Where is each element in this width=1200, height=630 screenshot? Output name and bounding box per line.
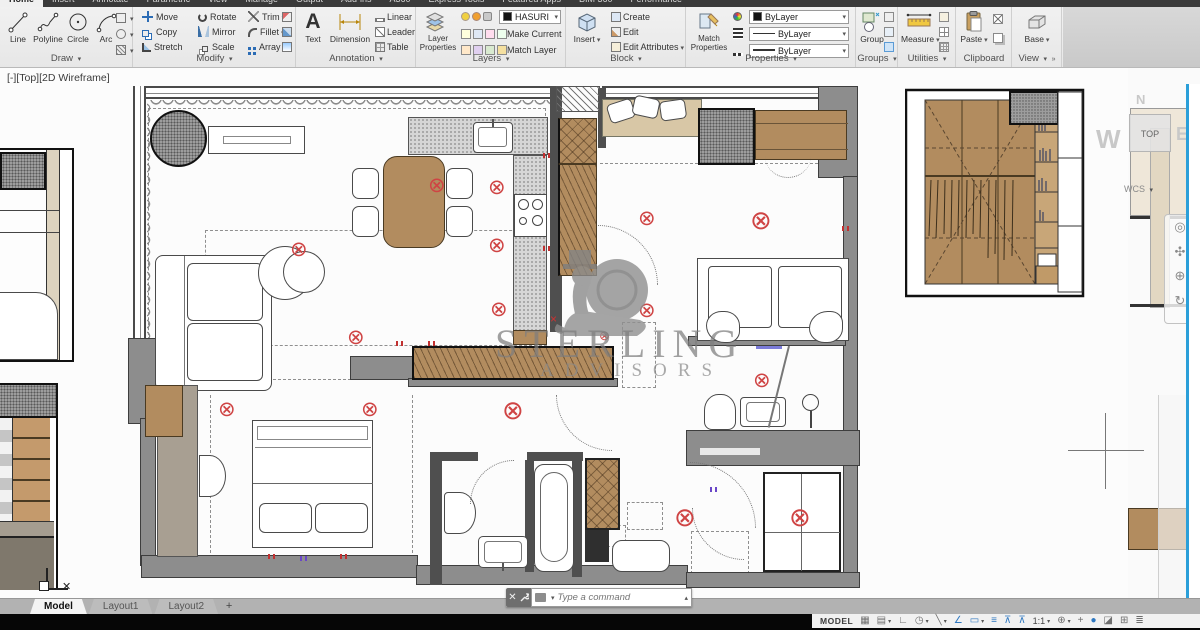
viewcube-top-face[interactable]: TOP <box>1129 114 1171 152</box>
measure-label: Measure <box>901 34 934 44</box>
dimension-icon <box>337 10 363 34</box>
viewcube-north-label[interactable]: N <box>1136 92 1145 107</box>
hatch-block <box>0 385 56 418</box>
layout2-tab[interactable]: Layout2 <box>154 599 218 614</box>
ceiling-light-symbol: ⊗ <box>361 399 379 420</box>
group-edit-icon[interactable] <box>884 25 896 39</box>
polyline-button[interactable]: Polyline <box>32 10 64 44</box>
bathroom-cabinet <box>585 458 620 530</box>
measure-icon <box>906 10 932 34</box>
window-edge-gap <box>1189 84 1200 598</box>
polar-tracking-icon[interactable]: ◷ <box>915 616 924 626</box>
bathroom-sink <box>740 397 786 427</box>
tab-manage[interactable]: Manage <box>236 0 287 7</box>
wall-segment <box>430 452 478 461</box>
drawing-viewport[interactable]: [-][Top][2D Wireframe] ‒□✕ ✕ <box>0 68 1200 598</box>
snap-icon[interactable]: ▤ <box>877 616 886 626</box>
layer-state-icons[interactable] <box>461 10 494 24</box>
shower-head <box>802 394 819 411</box>
watermark-text: ADVISORS <box>540 360 723 382</box>
status-bar: MODEL ▦ ▤▾ ∟ ◷▾ ╲▾ ∠ ▭▾ ≡ ⊼ ⊼ 1:1▾ ⊕▾ + … <box>0 614 1200 630</box>
ceiling-light-symbol: ⊗ <box>290 239 308 260</box>
line-button[interactable]: Line <box>2 10 34 44</box>
block-create-button[interactable]: Create <box>611 10 650 24</box>
sink-basin <box>478 127 507 147</box>
annotation-scale-value[interactable]: 1:1 <box>1033 616 1046 626</box>
draw-panel-footer[interactable]: Draw ▾ <box>0 53 132 66</box>
color-wheel-icon <box>733 10 744 24</box>
left-elevation-top <box>0 148 74 362</box>
utilities-panel: Measure▾ Utilities ▾ <box>899 7 956 67</box>
drawer-stack <box>13 418 50 521</box>
clipboard-panel: Paste▾ Clipboard <box>957 7 1012 67</box>
wall-niche <box>700 448 760 455</box>
annotation-visibility-icon[interactable]: ⊼ <box>1004 616 1011 626</box>
ceiling-light-symbol: ⊗ <box>502 397 524 423</box>
group-icon <box>861 10 883 34</box>
lineweight-icon <box>733 27 745 41</box>
blanket-line <box>255 447 371 448</box>
wall-segment <box>141 555 418 578</box>
sofa-back-line <box>184 256 185 390</box>
workspace-switching-icon[interactable]: ⊕ <box>1057 616 1065 626</box>
desk-line <box>756 123 848 124</box>
command-recent-arrow[interactable]: ▾ <box>551 594 555 602</box>
command-input[interactable] <box>557 592 681 603</box>
osnap-tracking-icon[interactable]: ∠ <box>954 616 963 626</box>
ribbon-tab-bar: Home Insert Annotate Parametric View Man… <box>0 0 1200 7</box>
ceiling-light-symbol: ⊗ <box>750 207 772 233</box>
ribbon-empty-area <box>1063 7 1200 67</box>
door-swing-arc <box>470 460 514 504</box>
base-button[interactable]: Base▾ <box>1021 10 1053 45</box>
clipboard-panel-footer: Clipboard <box>957 53 1011 66</box>
status-bar-tools: MODEL ▦ ▤▾ ∟ ◷▾ ╲▾ ∠ ▭▾ ≡ ⊼ ⊼ 1:1▾ ⊕▾ + … <box>812 614 1200 628</box>
ceiling-light-symbol: ⊗ <box>488 235 506 256</box>
stretch-button[interactable]: Stretch <box>142 40 183 54</box>
window-wall <box>133 86 146 348</box>
round-pillow <box>809 311 843 343</box>
stove <box>514 194 547 237</box>
leader-button[interactable]: Leader <box>375 25 415 39</box>
kitchen-counter <box>513 155 547 331</box>
ucs-x-label: ✕ <box>62 580 71 593</box>
ceiling-light-symbol: ⊗ <box>674 504 696 530</box>
layer-color-chip <box>503 12 512 21</box>
column-hatch-block <box>698 108 755 165</box>
bed <box>252 420 373 548</box>
socket-symbol <box>340 554 347 559</box>
dimension-button[interactable]: Dimension <box>329 10 371 44</box>
grid-icon[interactable]: ▦ <box>860 616 869 626</box>
shower-pole <box>810 411 812 428</box>
model-space-label[interactable]: MODEL <box>820 616 853 626</box>
paste-label: Paste <box>960 34 982 44</box>
group-button[interactable]: Group <box>857 10 887 44</box>
command-icon <box>535 593 546 602</box>
dining-chair <box>352 206 379 237</box>
tab-bim360[interactable]: BIM 360 <box>570 0 622 7</box>
bedside-table <box>199 455 226 497</box>
ceiling-light-symbol: ⊗ <box>488 177 506 198</box>
command-expand-icon[interactable]: ▴ <box>684 594 688 602</box>
block-panel-footer[interactable]: Block ▾ <box>567 53 685 66</box>
curtain-line <box>150 100 550 110</box>
dimension-label: Dimension <box>330 34 370 44</box>
shelf-column <box>0 418 13 521</box>
layer-properties-label: Layer Properties <box>420 34 456 52</box>
burner <box>532 215 543 226</box>
color-dropdown[interactable]: ByLayer▾ <box>749 10 849 24</box>
annotation-monitor-icon[interactable]: + <box>1078 616 1084 626</box>
wall-segment <box>350 356 414 380</box>
socket-symbol <box>396 341 403 346</box>
blanket-line <box>253 483 373 484</box>
layer-properties-button[interactable]: Layer Properties <box>419 10 457 53</box>
crosshair-cursor <box>1105 413 1106 489</box>
bathroom-sink <box>478 536 528 568</box>
ceiling-light-symbol: ⊗ <box>347 327 365 348</box>
wall-segment <box>843 176 858 588</box>
model-tab[interactable]: Model <box>30 599 87 614</box>
measure-button[interactable]: Measure▾ <box>901 10 937 45</box>
round-column <box>150 110 207 167</box>
tab-a360[interactable]: A360 <box>381 0 420 7</box>
ceiling-dashed-line <box>412 395 413 553</box>
trim-button[interactable]: Trim▾ <box>248 10 285 24</box>
id-point-icon[interactable] <box>939 25 951 39</box>
dining-chair <box>446 206 473 237</box>
left-elevation-bottom <box>0 383 58 590</box>
draw-panel: Line Polyline Circle Arc ▾ ▾ ▾ Draw ▾ <box>0 7 133 67</box>
quick-properties-icon[interactable]: ● <box>1090 616 1096 626</box>
bench <box>612 540 670 572</box>
cut-icon[interactable] <box>993 12 1005 26</box>
group-selection-icon[interactable] <box>884 40 896 54</box>
properties-panel: Match Properties ByLayer▾ ByLayer▾ ByLay… <box>687 7 856 67</box>
customize-wrench-icon[interactable] <box>519 593 529 603</box>
ortho-icon[interactable]: ∟ <box>898 616 908 626</box>
view-panel-footer[interactable]: View ▾ » <box>1013 53 1061 66</box>
socket-symbol <box>710 487 717 492</box>
command-bar[interactable]: ✕ ▾ ▴ <box>506 588 692 607</box>
dining-table <box>383 156 445 248</box>
table-button[interactable]: Table <box>375 40 409 54</box>
utilities-panel-footer[interactable]: Utilities ▾ <box>899 53 955 66</box>
insert-button[interactable]: Insert▾ <box>571 10 603 45</box>
layer-tools-row1[interactable] <box>461 27 509 41</box>
viewport-controls-label[interactable]: [-][Top][2D Wireframe] <box>7 72 110 84</box>
viewcube-west-label[interactable]: W <box>1096 124 1121 155</box>
ceiling-light-symbol: ⊗ <box>789 504 811 530</box>
array-button[interactable]: Array▾ <box>248 40 286 54</box>
text-icon: A <box>299 10 327 34</box>
closet-shelf <box>765 532 840 533</box>
fillet-button[interactable]: Fillet▾ <box>248 25 285 39</box>
sofa-cushion <box>187 263 263 321</box>
view-panel: Base▾ View ▾ » <box>1013 7 1062 67</box>
wall-segment <box>430 452 442 585</box>
base-label: Base <box>1025 34 1044 44</box>
move-button[interactable]: Move <box>142 10 178 24</box>
copy-clip-icon[interactable] <box>993 31 1005 45</box>
line-label: Line <box>10 34 26 44</box>
burner <box>518 199 529 210</box>
copy-button[interactable]: Copy <box>142 25 177 39</box>
tab-output[interactable]: Output <box>287 0 332 7</box>
layout1-tab[interactable]: Layout1 <box>89 599 153 614</box>
tv <box>223 136 291 144</box>
tab-insert[interactable]: Insert <box>43 0 84 7</box>
match-properties-button[interactable]: Match Properties <box>689 10 729 53</box>
tab-express-tools[interactable]: Express Tools <box>420 0 494 7</box>
erase-icon[interactable] <box>282 10 294 24</box>
insert-icon <box>575 10 599 34</box>
wall-segment <box>686 572 860 588</box>
dark-cabinet <box>585 530 609 562</box>
command-input-field[interactable]: ▾ ▴ <box>531 588 692 607</box>
base-icon <box>1025 10 1049 34</box>
ceiling-light-symbol: ⊗ <box>490 299 508 320</box>
make-current-button[interactable]: Make Current <box>507 27 562 41</box>
block-panel: Insert▾ Create Edit Edit Attributes▾ Blo… <box>567 7 686 67</box>
annotation-panel: A Text Dimension Linear Leader Table Ann… <box>297 7 416 67</box>
circle-label: Circle <box>67 34 89 44</box>
text-label: Text <box>305 34 321 44</box>
paste-button[interactable]: Paste▾ <box>959 10 989 45</box>
edit-attributes-button[interactable]: Edit Attributes▾ <box>611 40 684 54</box>
socket-symbol <box>300 556 307 561</box>
command-bar-handle[interactable]: ✕ <box>506 588 531 607</box>
rectangle-tool-icon[interactable]: ▾ <box>116 11 134 25</box>
crosshair-cursor <box>1068 450 1144 451</box>
cabinet <box>145 385 183 437</box>
lineweight-display-icon[interactable]: ≡ <box>991 616 997 626</box>
pillow <box>659 98 688 121</box>
ellipse-tool-icon[interactable]: ▾ <box>116 27 134 41</box>
wall-segment <box>140 418 156 566</box>
text-button[interactable]: A Text <box>299 10 327 44</box>
socket-symbol <box>428 341 435 346</box>
dining-chair <box>446 168 473 199</box>
autoscale-icon[interactable]: ⊼ <box>1018 616 1025 626</box>
modify-panel: Move Copy Stretch Rotate Mirror Scale Tr… <box>134 7 296 67</box>
kitchen-sink <box>473 122 513 153</box>
layer-dropdown[interactable]: HASURI▾ <box>499 10 561 24</box>
modify-panel-footer[interactable]: Modify ▾ <box>134 53 295 66</box>
tv-console <box>208 126 305 154</box>
quick-select-icon[interactable] <box>939 10 951 24</box>
ceiling-light-symbol: ⊗ <box>753 370 771 391</box>
panel-strip <box>59 150 71 360</box>
tab-parametric[interactable]: Parametric <box>138 0 200 7</box>
counter-strip <box>0 521 54 536</box>
window-wall <box>133 86 558 99</box>
pillow <box>315 503 368 533</box>
ungroup-icon[interactable] <box>884 10 896 24</box>
hardware-acceleration-icon[interactable]: ⊞ <box>1120 616 1128 626</box>
group-label: Group <box>860 34 884 44</box>
polyline-label: Polyline <box>33 34 63 44</box>
paste-icon <box>964 10 984 34</box>
block-edit-button[interactable]: Edit <box>611 25 639 39</box>
shelf-line <box>0 210 59 211</box>
explode-icon[interactable] <box>282 25 294 39</box>
towel-rail <box>756 346 782 349</box>
wardrobe-elevation-drawing <box>905 88 1085 300</box>
ucs-icon <box>39 581 49 591</box>
toilet <box>704 394 736 430</box>
entry-threshold-hatch <box>556 86 600 112</box>
sofa-cushion <box>187 323 263 381</box>
linear-button[interactable]: Linear <box>375 10 412 24</box>
burner <box>519 217 527 225</box>
sofa-side-view <box>0 292 58 360</box>
door-swing-arc <box>556 395 612 451</box>
shelf-line <box>0 232 59 233</box>
hatch-block <box>0 152 46 190</box>
dining-chair <box>352 168 379 199</box>
isolate-objects-icon[interactable]: ◪ <box>1103 616 1112 626</box>
command-close-icon[interactable]: ✕ <box>508 592 516 603</box>
calculator-icon[interactable] <box>939 40 951 54</box>
groups-panel-footer[interactable]: Groups ▾ <box>857 53 897 66</box>
layer-properties-icon <box>425 10 451 34</box>
mirror-button[interactable]: Mirror <box>198 25 236 39</box>
headboard <box>257 426 368 440</box>
sofa <box>155 255 272 391</box>
ribbon: Line Polyline Circle Arc ▾ ▾ ▾ Draw ▾ Mo… <box>0 7 1200 68</box>
properties-panel-footer[interactable]: Properties ▾ <box>687 53 855 66</box>
insert-label: Insert <box>574 34 595 44</box>
desk-line <box>756 149 848 150</box>
viewcube-wcs-menu[interactable]: WCS ▾ <box>1124 184 1153 194</box>
annotation-panel-footer[interactable]: Annotation ▾ <box>297 53 415 66</box>
burner <box>532 199 543 210</box>
sink-tap <box>492 119 494 127</box>
arc-label: Arc <box>100 34 113 44</box>
tab-home[interactable]: Home <box>0 0 43 7</box>
bathtub <box>534 464 574 572</box>
socket-symbol <box>268 554 275 559</box>
scale-button[interactable]: Scale <box>198 40 235 54</box>
ceiling-light-symbol: ⊗ <box>428 175 446 196</box>
polyline-icon <box>37 10 59 34</box>
rotate-button[interactable]: Rotate <box>198 10 237 24</box>
pillow <box>259 503 312 533</box>
bathtub-basin <box>540 472 568 562</box>
tab-addins[interactable]: Add-ins <box>332 0 381 7</box>
dashed-box <box>627 502 663 530</box>
ceiling-light-symbol: ⊗ <box>638 208 656 229</box>
wardrobe <box>558 118 597 164</box>
door-swing-arc <box>765 156 811 178</box>
ceiling-light-symbol: ⊗ <box>218 399 236 420</box>
sink-tap <box>502 563 504 571</box>
line-icon <box>7 10 29 34</box>
socket-symbol <box>543 153 550 158</box>
arc-icon <box>95 10 117 34</box>
sink-basin <box>484 541 522 563</box>
new-layout-button[interactable]: + <box>220 599 238 614</box>
layers-panel-footer[interactable]: Layers ▾ <box>417 53 565 66</box>
circle-icon <box>67 10 89 34</box>
socket-symbol <box>842 226 849 231</box>
linetype-dropdown[interactable]: ByLayer▾ <box>749 27 849 41</box>
tab-performance[interactable]: Performance <box>621 0 691 7</box>
isodraft-icon[interactable]: ╲ <box>936 616 942 626</box>
match-properties-label: Match Properties <box>691 34 727 52</box>
tab-view[interactable]: View <box>199 0 236 7</box>
customization-menu-icon[interactable]: ≣ <box>1135 616 1143 626</box>
groups-panel: Group Groups ▾ <box>857 7 898 67</box>
desk <box>755 110 847 160</box>
tab-featured-apps[interactable]: Featured Apps <box>493 0 570 7</box>
layers-panel: Layer Properties HASURI▾ Make Current Ma… <box>417 7 566 67</box>
tab-annotate[interactable]: Annotate <box>84 0 138 7</box>
match-properties-icon <box>697 10 721 34</box>
object-snap-icon[interactable]: ▭ <box>970 616 979 626</box>
gradient-icon[interactable] <box>282 40 294 54</box>
